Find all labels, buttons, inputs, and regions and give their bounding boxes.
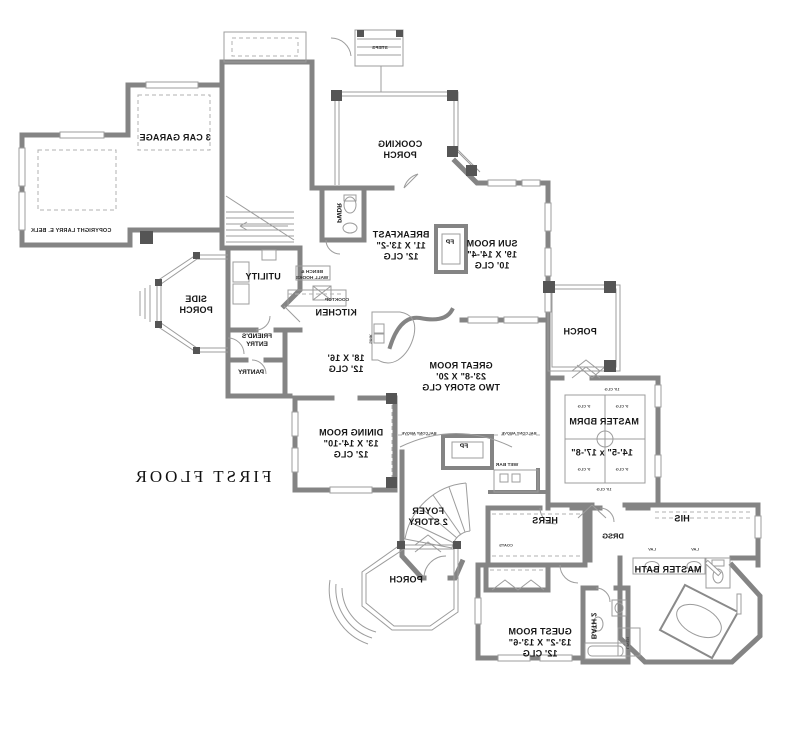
sink-label: SINK	[369, 334, 374, 344]
ceiling-note: 10' CLG	[597, 487, 612, 492]
fireplace-label: FP	[446, 239, 454, 247]
room-label-bath2: BATH 2	[590, 613, 599, 640]
copyright-text: COPYRIGHT LARRY E. BELK	[31, 228, 112, 234]
floorplan-page: COPYRIGHT LARRY E. BELK FIRST FLOOR 3 CA…	[0, 0, 800, 735]
room-label-his: HIS	[674, 514, 690, 525]
room-label-breakfast: BREAKFAST11' X 13'-2"12' CLG	[373, 230, 430, 263]
lav-label: LAV	[691, 547, 699, 552]
room-label-friends-entry: FRIEND'SENTRY	[242, 333, 272, 349]
fireplace-greatroom	[443, 436, 492, 468]
sink-oval	[343, 223, 357, 233]
room-label-hers: HERS	[532, 516, 558, 527]
master-bdrm-size: 14'-5" x 17'-8"	[571, 448, 633, 459]
wetbar-wall	[490, 470, 548, 492]
room-label-drsg: DRSG	[602, 532, 624, 541]
room-label-master-bdrm: MASTER BDRM	[569, 417, 639, 428]
ceiling-note: 9' CLG	[578, 404, 591, 409]
fireplace-sunroom	[436, 226, 466, 272]
floorplan-drawing	[0, 0, 800, 735]
wet-bar-counter	[494, 470, 538, 492]
room-label-foyer: FOYER2 STORY	[408, 506, 447, 528]
wet-bar-label: WET BAR	[496, 463, 518, 469]
balcony-above-label: BALCONY ABOVE	[402, 431, 437, 436]
room-label-kitchen: KITCHEN	[315, 308, 356, 319]
fireplace-label: FP	[460, 443, 468, 451]
toilet	[344, 197, 356, 213]
room-label-pantry: PANTRY	[238, 369, 264, 377]
room-label-great-room: GREAT ROOM23'-8" X 20'TWO STORY CLG	[422, 361, 500, 394]
rear-hall-walls	[222, 62, 312, 248]
room-label-garage: 3 CAR GARAGE	[139, 133, 210, 144]
his-rods	[655, 512, 750, 518]
ceiling-note: 9' CLG	[578, 467, 591, 472]
lav-label: LAV	[648, 547, 656, 552]
bench-label: BENCH &WALL HOOKS	[296, 270, 328, 282]
room-label-side-porch: SIDEPORCH	[179, 294, 213, 316]
linen-label: LINEN	[626, 637, 631, 649]
room-label-dining: DINING ROOM13' X 14'-10"12' CLG	[319, 428, 383, 461]
garage-bay	[38, 150, 116, 210]
kitchen-size-label: 18' X 16'12' CLG	[327, 353, 364, 375]
room-label-pwdr: PWDR	[334, 203, 342, 223]
plan-title: FIRST FLOOR	[133, 467, 272, 487]
coats-label: COATS	[499, 543, 513, 548]
garage-walls	[22, 85, 222, 245]
garden-tub	[660, 585, 738, 658]
room-label-sun-room: SUN ROOM19' X 14'-4"10' CLG	[466, 239, 517, 272]
ceiling-note: 9' CLG	[616, 404, 629, 409]
ceiling-note: 10' CLG	[605, 387, 620, 392]
balcony-above-label: BALCONY ABOVE	[502, 431, 537, 436]
room-label-porch-front: PORCH	[389, 575, 423, 586]
room-label-guest-room: GUEST ROOM13'-2" X 13'-6"12' CLG	[508, 627, 572, 660]
room-label-cooking-porch: COOKINGPORCH	[378, 139, 422, 161]
room-label-utility: UTILITY	[245, 272, 280, 283]
bathtub	[585, 643, 626, 659]
rear-stairs	[226, 196, 294, 242]
room-label-porch-right: PORCH	[563, 327, 597, 338]
room-label-master-bath: MASTER BATH	[634, 565, 701, 576]
curved-wall	[390, 310, 452, 347]
ceiling-note: 9' CLG	[616, 467, 629, 472]
steps-label: STEPS	[372, 46, 388, 52]
cooktop-label: COOKTOP	[325, 298, 349, 304]
